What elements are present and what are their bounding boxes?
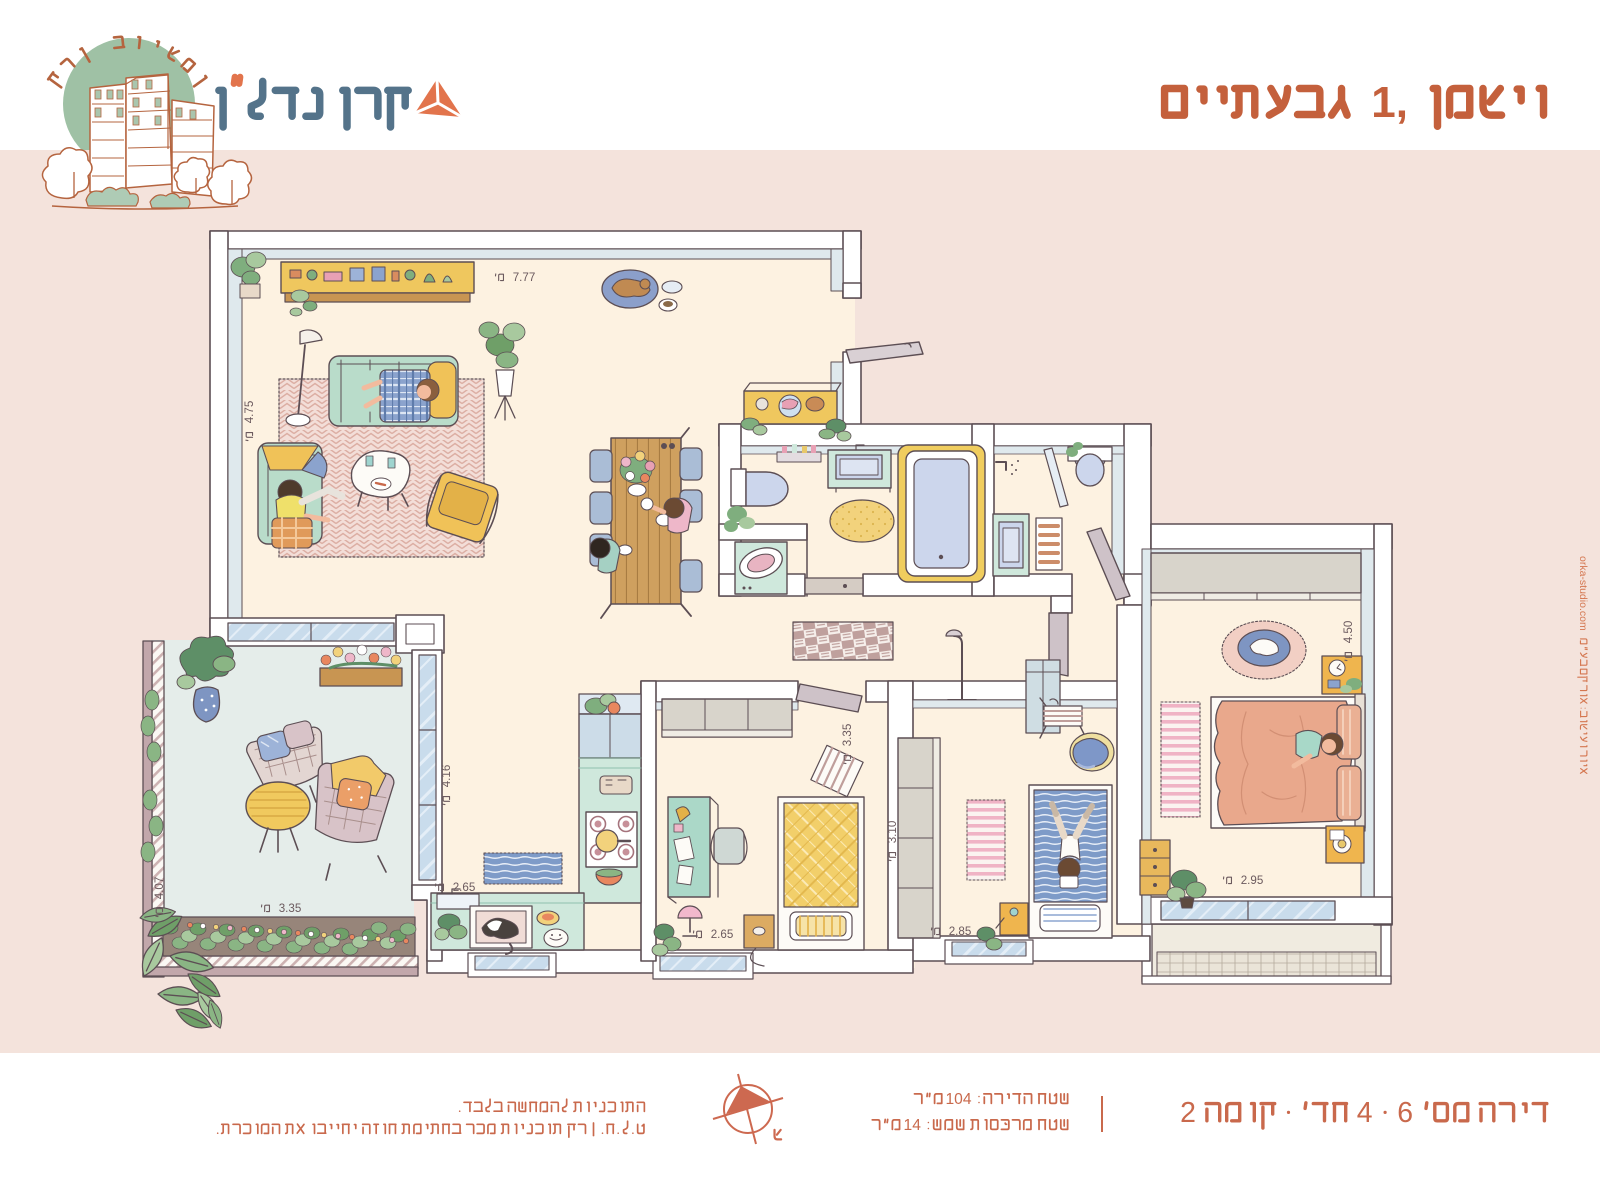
svg-text:4.50: 4.50 [1342,621,1355,644]
svg-text:2.65: 2.65 [453,881,476,894]
svg-text:14: 14 [904,1117,922,1134]
svg-text:4.07: 4.07 [153,877,166,900]
svg-text:2.65: 2.65 [711,928,734,941]
svg-text:3.10: 3.10 [886,821,899,844]
svg-text:3.35: 3.35 [279,902,302,915]
svg-text:4.75: 4.75 [243,401,256,424]
svg-text:3.35: 3.35 [841,724,854,747]
svg-text:7.77: 7.77 [513,271,536,284]
svg-text:1,: 1, [1371,78,1408,127]
svg-text:2.95: 2.95 [1241,874,1264,887]
svg-text:orka-studio.com: orka-studio.com [1577,556,1589,631]
svg-text:4: 4 [1357,1097,1373,1129]
svg-text:104: 104 [945,1091,971,1108]
svg-text:4.16: 4.16 [440,765,453,788]
svg-text:6: 6 [1397,1097,1413,1129]
svg-text:2.85: 2.85 [949,925,972,938]
svg-text:2: 2 [1180,1097,1196,1129]
